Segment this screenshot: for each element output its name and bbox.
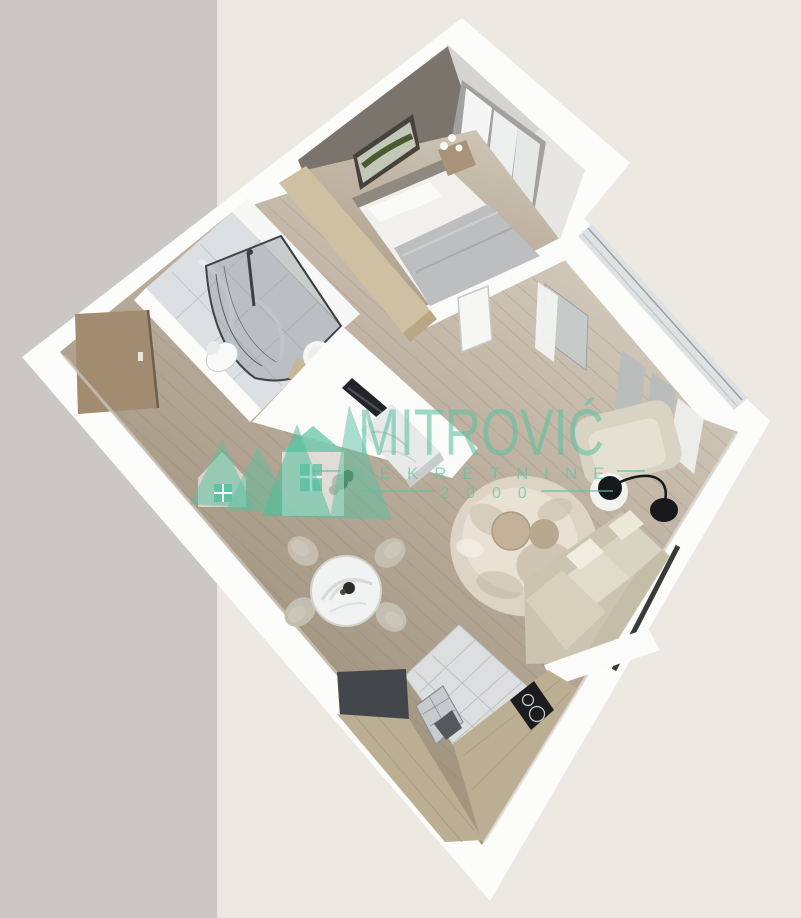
svg-text:2000: 2000 xyxy=(440,485,544,502)
svg-text:MITROVIĆ: MITROVIĆ xyxy=(358,395,604,469)
